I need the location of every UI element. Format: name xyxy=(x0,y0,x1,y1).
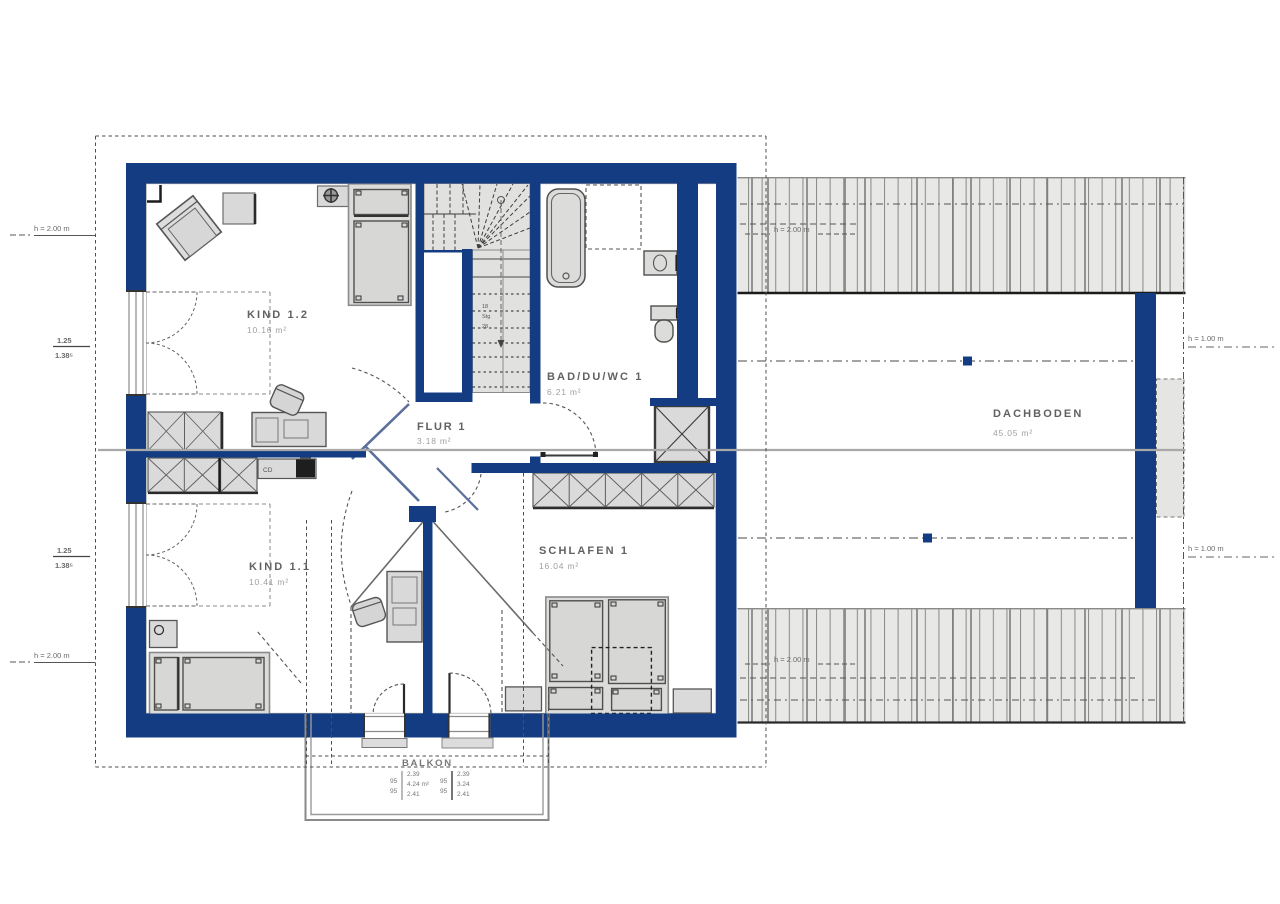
svg-text:h = 2.00 m: h = 2.00 m xyxy=(34,651,70,660)
svg-text:KIND 1.2: KIND 1.2 xyxy=(247,309,309,321)
svg-text:28: 28 xyxy=(482,324,488,330)
svg-text:2.39: 2.39 xyxy=(457,771,470,778)
svg-text:2.41: 2.41 xyxy=(457,791,470,798)
svg-text:1.38⁵: 1.38⁵ xyxy=(55,351,74,360)
svg-text:CD: CD xyxy=(263,467,273,474)
svg-text:h = 2.00 m: h = 2.00 m xyxy=(34,224,70,233)
svg-text:16.04 m²: 16.04 m² xyxy=(539,561,579,571)
svg-text:h = 1.00 m: h = 1.00 m xyxy=(1188,334,1224,343)
svg-text:2.41: 2.41 xyxy=(407,791,420,798)
svg-text:h = 1.00 m: h = 1.00 m xyxy=(1188,544,1224,553)
svg-text:Stg: Stg xyxy=(482,314,490,320)
svg-text:1.38⁵: 1.38⁵ xyxy=(55,561,74,570)
svg-text:18: 18 xyxy=(482,304,488,310)
svg-text:FLUR 1: FLUR 1 xyxy=(417,421,466,433)
svg-text:4.24 m²: 4.24 m² xyxy=(407,781,430,788)
svg-text:h = 2.00 m: h = 2.00 m xyxy=(774,655,810,664)
svg-text:1.25: 1.25 xyxy=(57,546,72,555)
svg-text:h = 2.00 m: h = 2.00 m xyxy=(774,225,810,234)
svg-text:95: 95 xyxy=(440,788,448,795)
svg-text:DACHBODEN: DACHBODEN xyxy=(993,408,1083,420)
svg-text:KIND 1.1: KIND 1.1 xyxy=(249,561,311,573)
svg-text:SCHLAFEN 1: SCHLAFEN 1 xyxy=(539,545,629,557)
svg-text:10.16 m²: 10.16 m² xyxy=(247,325,287,335)
svg-text:6.21 m²: 6.21 m² xyxy=(547,387,581,397)
svg-text:45.05 m²: 45.05 m² xyxy=(993,428,1033,438)
svg-text:BAD/DU/WC 1: BAD/DU/WC 1 xyxy=(547,371,643,383)
svg-text:3.24: 3.24 xyxy=(457,781,470,788)
svg-text:10.41 m²: 10.41 m² xyxy=(249,577,289,587)
svg-text:3.18 m²: 3.18 m² xyxy=(417,436,451,446)
svg-text:1.25: 1.25 xyxy=(57,336,72,345)
svg-text:95: 95 xyxy=(390,778,398,785)
svg-text:95: 95 xyxy=(440,778,448,785)
svg-text:95: 95 xyxy=(390,788,398,795)
svg-text:2.39: 2.39 xyxy=(407,771,420,778)
